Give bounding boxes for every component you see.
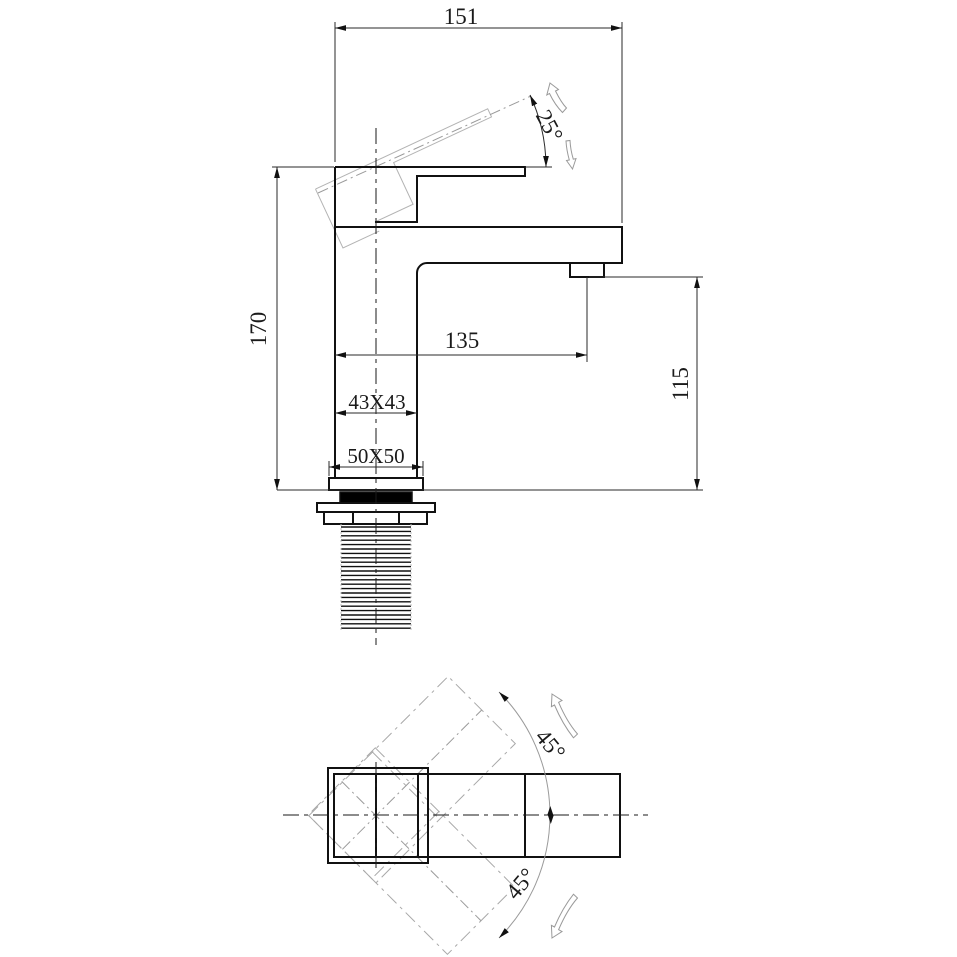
plan-view: 45° 45° [283,676,648,954]
dim-body-section-label: 43X43 [348,390,405,414]
dim-overall-height: 170 [246,167,334,490]
arc-mid-arrow-down [548,815,554,824]
dim-spout-reach-label: 135 [445,328,480,353]
handle-lever [335,167,525,222]
swing-arrow-cw-icon [551,894,577,938]
aerator [570,263,604,277]
drawing-page: 151 170 135 115 43X43 [0,0,957,957]
dim-outlet-height: 115 [589,277,703,490]
handle-phantom-centerline [318,96,531,193]
dim-overall-height-label: 170 [246,312,271,347]
dim-body-section: 43X43 [335,390,417,414]
dim-outlet-height-label: 115 [668,367,693,401]
dim-base-section-label: 50X50 [347,444,404,468]
dim-spout-reach: 135 [335,277,587,362]
rotation-arrow-down-icon [566,141,576,170]
arc-mid-arrow-up [547,806,553,815]
faucet-technical-drawing: 151 170 135 115 43X43 [0,0,957,957]
front-view: 151 170 135 115 43X43 [246,4,703,645]
dim-overall-width-label: 151 [444,4,479,29]
dim-handle-angle: 25° [525,83,576,169]
handle-phantom-swing-lower [308,748,514,954]
dim-swing-upper-label: 45° [530,724,570,765]
dim-swing-lower-label: 45° [501,863,541,904]
handle-phantom-raised [316,96,531,248]
